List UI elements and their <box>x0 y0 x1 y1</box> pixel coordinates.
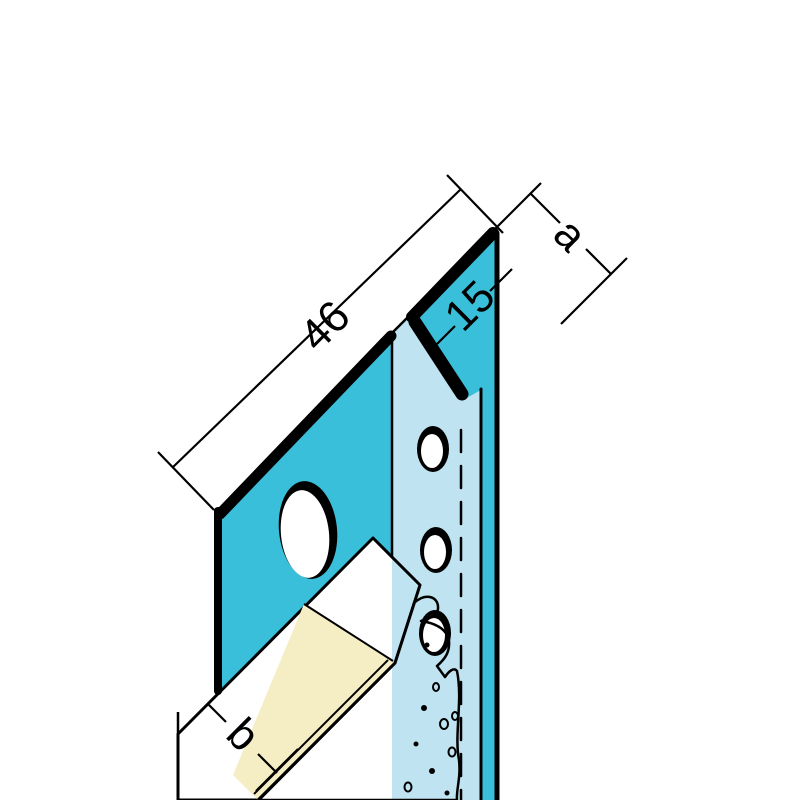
drawing-canvas: 46 15 a b <box>0 0 800 800</box>
dim-a-label: a <box>544 209 596 261</box>
dim-46-label: 46 <box>290 291 359 360</box>
profile-isometric-diagram: 46 15 a b <box>0 0 800 800</box>
dimension-a: a <box>495 183 627 324</box>
